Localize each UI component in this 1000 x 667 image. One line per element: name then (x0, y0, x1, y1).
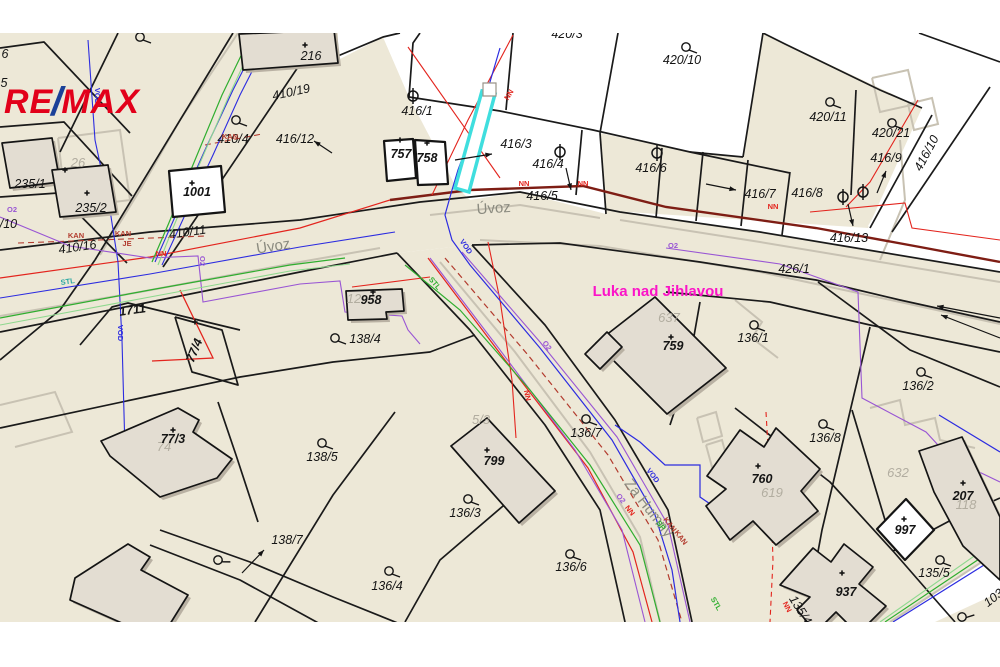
parcel-label: 758 (417, 151, 438, 165)
utility-label: NN (768, 202, 779, 211)
map-margin-bottom (0, 622, 1000, 667)
utility-label: O2 (668, 241, 678, 250)
building (239, 30, 338, 70)
parcel-label: 136/7 (570, 426, 602, 440)
street-label: Úvoz (476, 199, 511, 218)
utility-label: JE (122, 239, 131, 248)
parcel-label: 420/11 (809, 110, 846, 124)
parcel-label: 420/21 (872, 126, 910, 140)
ghost-parcel-label: 26 (70, 155, 86, 170)
utility-label: NN (578, 179, 589, 188)
parcel-label: 136/2 (902, 379, 933, 393)
map-viewport[interactable]: 26126376196321185/374ÚvozÚvozZa Humny420… (0, 0, 1000, 667)
parcel-label: 416/9 (870, 151, 901, 165)
parcel-label: 136/8 (809, 431, 840, 445)
parcel-label: 997 (895, 523, 917, 537)
parcel-label: 416/3 (500, 137, 531, 151)
utility-label: KAN (68, 231, 84, 240)
parcel-label: 136/1 (737, 331, 768, 345)
cadastral-map[interactable]: 26126376196321185/374ÚvozÚvozZa Humny420… (0, 0, 1000, 667)
parcel-label: 216 (300, 49, 322, 63)
highlight-marker (483, 83, 496, 96)
ghost-parcel-label: 637 (658, 310, 680, 325)
remax-logo-slash: / (51, 80, 63, 124)
parcel-label: 138/7 (271, 533, 303, 547)
utility-label: KAN (222, 132, 238, 141)
parcel-label: 416/12 (276, 132, 314, 146)
ghost-parcel-label: 5/3 (472, 412, 491, 427)
parcel-label: 799 (484, 454, 505, 468)
parcel-label: 207 (952, 489, 975, 503)
parcel-label: 416/1 (401, 104, 432, 118)
parcel-label: 760 (752, 472, 773, 486)
parcel-label: 235/2 (74, 201, 106, 215)
parcel-label: 135/5 (918, 566, 949, 580)
utility-label: O2 (198, 256, 207, 266)
parcel-label: 416/8 (791, 186, 822, 200)
parcel-label: 1001 (183, 185, 211, 199)
parcel-label: 759 (663, 339, 684, 353)
parcel-label: 136/3 (449, 506, 480, 520)
parcel-label: 416/13 (830, 231, 868, 245)
parcel-label: 138/5 (306, 450, 337, 464)
utility-label: NN (156, 249, 167, 258)
parcel-label: 6 (2, 47, 9, 61)
parcel-label: 420/10 (663, 53, 701, 67)
map-margin-top (0, 0, 1000, 33)
town-label: Luka nad Jihlavou (593, 283, 724, 300)
remax-logo: RE/MAX (4, 80, 140, 120)
remax-logo-re: RE (4, 83, 53, 121)
parcel-label: 757 (391, 147, 413, 161)
parcel-label: 958 (361, 293, 382, 307)
ghost-parcel-label: 632 (887, 465, 909, 480)
parcel-label: 416/6 (635, 161, 666, 175)
parcel-label: 136/6 (555, 560, 586, 574)
utility-label: KAN (115, 229, 131, 238)
ghost-parcel-label: 619 (761, 485, 783, 500)
utility-label: VOD (116, 325, 125, 342)
parcel-label: 937 (836, 585, 858, 599)
parcel-label: 410/10 (0, 217, 17, 231)
parcel-label: 235/1 (13, 177, 45, 191)
parcel-label: 77/3 (161, 432, 185, 446)
parcel-label: 138/4 (349, 332, 380, 346)
utility-label: NN (519, 179, 530, 188)
parcel-label: 416/4 (532, 157, 563, 171)
remax-logo-max: MAX (61, 83, 140, 121)
utility-label: O2 (7, 205, 17, 214)
parcel-label: 416/5 (526, 189, 557, 203)
parcel-label: 416/7 (744, 187, 776, 201)
parcel-label: 426/1 (778, 262, 809, 276)
parcel-label: 136/4 (371, 579, 402, 593)
